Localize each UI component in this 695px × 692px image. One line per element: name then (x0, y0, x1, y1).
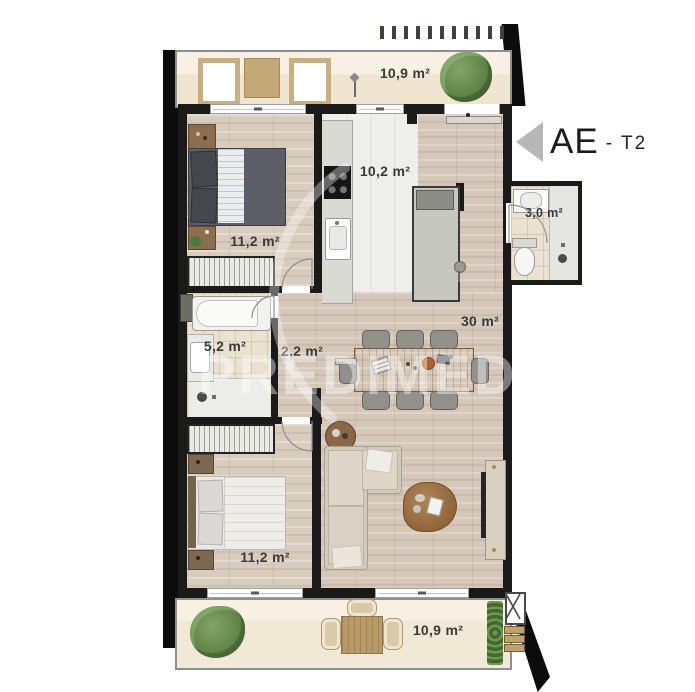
bed-sheet (218, 149, 244, 223)
window (207, 588, 303, 598)
wall-bedroom2-living (312, 388, 321, 598)
window (356, 104, 404, 114)
unit-tag: AE - T2 (516, 122, 647, 162)
bathroom-small-label: 3,0 m² (512, 206, 576, 220)
dining-chair (396, 391, 424, 410)
bathroom-main-doorway (271, 296, 278, 318)
bistro-table (341, 616, 383, 654)
nightstand (188, 124, 216, 150)
dining-chair (430, 330, 458, 349)
railing-tick (440, 26, 444, 39)
dining-chair (471, 358, 489, 384)
dining-chair (430, 391, 458, 410)
corner-shadow-left (163, 50, 178, 648)
bedroom-1-label: 11,2 m² (195, 233, 315, 249)
balcony-chair (198, 58, 240, 106)
shower-valve (561, 243, 565, 247)
hall-label: 2,2 m² (272, 343, 332, 359)
wall-bathroom-top-right (310, 286, 322, 293)
bedroom-2-doorway (282, 417, 310, 424)
floorplan-canvas: 10,9 m² (0, 0, 695, 692)
wall-bathroom-right (271, 318, 278, 424)
sofa-pillow (365, 448, 394, 473)
railing-tick (452, 26, 456, 39)
coffee-table-plate (415, 494, 425, 502)
living-room-label: 30 m² (440, 313, 520, 329)
floor-lamp (454, 261, 466, 273)
dining-chair (362, 330, 390, 349)
entrance-door-handle (466, 113, 470, 117)
railing-tick (380, 26, 384, 39)
shower-drain (558, 254, 567, 263)
bedroom-2-label: 11,2 m² (205, 549, 325, 565)
nightstand (188, 454, 214, 474)
nightstand-decor (196, 556, 200, 560)
side-table-decor (342, 433, 348, 439)
hedge-plant (487, 601, 503, 665)
wall-bathroom-right-stub (271, 286, 278, 296)
kitchen-label: 10,2 m² (330, 163, 440, 179)
ladder (505, 592, 526, 625)
balcony-chair (289, 58, 331, 106)
window (210, 104, 306, 114)
bathtub-basin (196, 300, 258, 327)
bistro-chair (321, 618, 341, 650)
tv (481, 472, 486, 538)
ladder-step (504, 644, 525, 652)
railing-tick (428, 26, 432, 39)
ladder-step (504, 635, 525, 643)
bed-duvet (224, 477, 284, 547)
wall-bathroom-bottom (178, 417, 282, 424)
window (375, 588, 469, 598)
sofa-cushion (328, 450, 364, 506)
unit-type: - T2 (606, 133, 647, 155)
console-decor (492, 548, 496, 552)
railing-tick (500, 26, 504, 39)
floor-lamp-stem (458, 271, 460, 282)
balcony-bottom-label: 10,9 m² (393, 622, 483, 638)
entrance-doorway (444, 104, 500, 114)
table-decor (449, 355, 453, 359)
shower-small (549, 186, 578, 280)
wardrobe-bedroom-1 (187, 256, 275, 288)
bed-pillow (190, 188, 217, 224)
entrance-door-leaf (446, 116, 502, 124)
dining-chair (362, 391, 390, 410)
unit-code: AE (550, 122, 599, 162)
railing-tick (476, 26, 480, 39)
wall-bedroom1-kitchen (314, 104, 322, 293)
bed-pillow (190, 150, 218, 187)
wardrobe-bedroom-2 (187, 424, 275, 454)
console-decor (492, 465, 496, 469)
dining-chair (396, 330, 424, 349)
ladder-step (504, 626, 525, 634)
shower-main-drain (197, 392, 207, 402)
kitchen-faucet (335, 221, 339, 225)
toilet-small-bowl (514, 247, 535, 276)
wall-bathroom-top (178, 286, 282, 293)
railing-tick (488, 26, 492, 39)
nightstand-decor (203, 136, 207, 140)
arrow-left-icon (516, 122, 543, 162)
bed-pillow (197, 513, 223, 546)
table-decor (406, 362, 410, 366)
bistro-chair (347, 599, 377, 617)
bathroom-main-label: 5,2 m² (185, 338, 265, 354)
hall-door-leaf (335, 358, 357, 365)
nightstand-decor (196, 460, 200, 464)
bed-pillow (197, 480, 223, 513)
table-decor-bowl (422, 357, 435, 370)
sofa-pillow (331, 545, 363, 570)
table-decor (413, 366, 417, 370)
kitchen-counter (322, 120, 353, 304)
bathroom-small-doorway (506, 203, 511, 243)
fridge-top-compartment (416, 190, 454, 210)
bedroom-1-doorway (282, 286, 310, 293)
railing-tick (464, 26, 468, 39)
railing-tick (416, 26, 420, 39)
wall-stub-entry (407, 104, 417, 124)
tv-console (485, 460, 506, 560)
railing-tick (392, 26, 396, 39)
shower-main-valve (212, 395, 216, 399)
kitchen-sink-basin (329, 226, 347, 250)
railing-tick (404, 26, 408, 39)
bed-headboard (188, 476, 196, 548)
coffee-table-plate (413, 505, 421, 513)
nightstand-decor (196, 132, 200, 136)
balcony-top-label: 10,9 m² (345, 65, 465, 81)
balcony-table (244, 58, 280, 98)
side-table-decor (332, 429, 340, 437)
